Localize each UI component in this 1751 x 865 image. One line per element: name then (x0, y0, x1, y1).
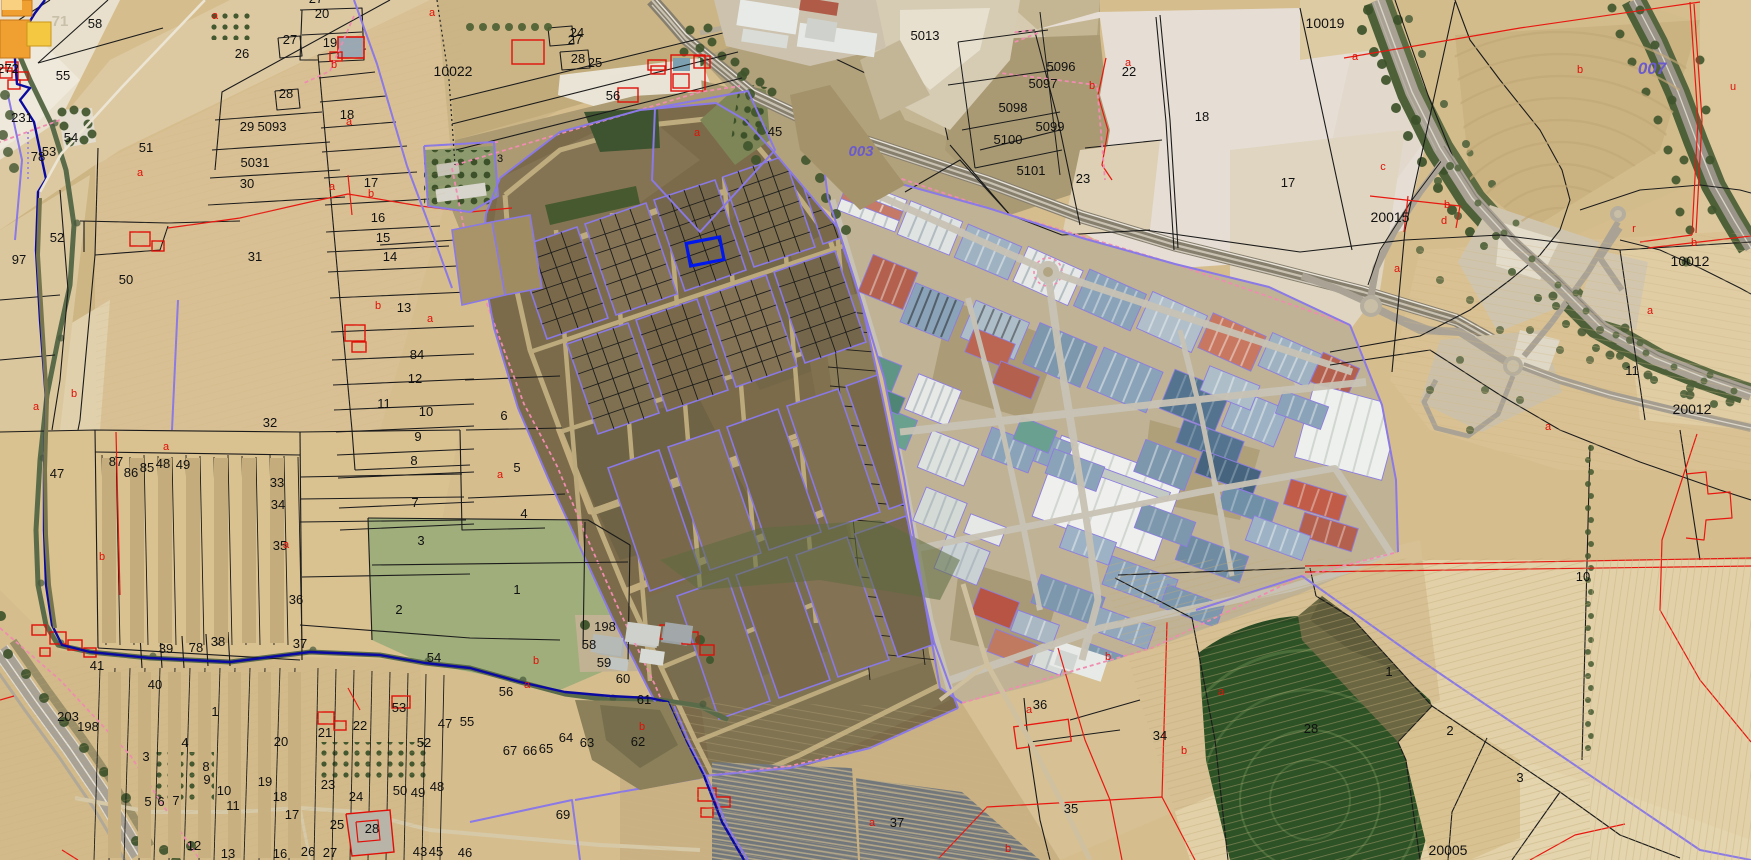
svg-text:10: 10 (217, 783, 231, 798)
svg-text:r: r (1632, 223, 1636, 235)
svg-text:48: 48 (430, 779, 444, 794)
svg-text:9: 9 (414, 429, 421, 444)
svg-text:45: 45 (768, 124, 782, 139)
svg-text:8: 8 (410, 453, 417, 468)
svg-text:29: 29 (240, 119, 254, 134)
svg-text:007: 007 (1638, 59, 1668, 78)
svg-text:231: 231 (11, 110, 33, 125)
svg-text:272: 272 (0, 61, 19, 76)
svg-text:5097: 5097 (1029, 76, 1058, 91)
svg-text:203: 203 (57, 709, 79, 724)
svg-text:5099: 5099 (1036, 119, 1065, 134)
svg-text:71: 71 (52, 13, 69, 30)
svg-text:45: 45 (429, 844, 443, 859)
svg-text:59: 59 (597, 655, 611, 670)
svg-text:18: 18 (273, 789, 287, 804)
svg-text:b: b (1089, 80, 1095, 92)
svg-text:56: 56 (606, 88, 620, 103)
svg-text:62: 62 (631, 734, 645, 749)
svg-text:48: 48 (156, 456, 170, 471)
svg-text:58: 58 (582, 637, 596, 652)
svg-text:16: 16 (273, 846, 287, 860)
svg-text:66: 66 (523, 743, 537, 758)
svg-text:5: 5 (513, 460, 520, 475)
svg-text:11: 11 (226, 798, 240, 813)
svg-text:a: a (283, 539, 290, 551)
svg-text:17: 17 (1281, 175, 1295, 190)
svg-text:b: b (331, 59, 337, 71)
svg-text:43: 43 (413, 844, 427, 859)
svg-text:5093: 5093 (258, 119, 287, 134)
svg-text:18: 18 (1195, 109, 1209, 124)
svg-text:11: 11 (1625, 363, 1639, 378)
svg-text:65: 65 (539, 741, 553, 756)
svg-text:34: 34 (1153, 728, 1167, 743)
svg-text:28: 28 (279, 86, 293, 101)
svg-text:20: 20 (315, 6, 329, 21)
svg-text:22: 22 (353, 718, 367, 733)
svg-text:27: 27 (323, 845, 337, 860)
svg-text:2: 2 (1446, 723, 1453, 738)
svg-text:5: 5 (144, 794, 151, 809)
svg-text:47: 47 (438, 716, 452, 731)
svg-text:a: a (1545, 421, 1552, 433)
svg-text:39: 39 (159, 641, 173, 656)
svg-text:36: 36 (1033, 697, 1047, 712)
svg-text:60: 60 (616, 671, 630, 686)
svg-text:20012: 20012 (1673, 401, 1712, 417)
svg-text:54: 54 (427, 650, 441, 665)
svg-text:64: 64 (559, 730, 573, 745)
svg-text:d: d (1441, 215, 1447, 227)
svg-text:33: 33 (270, 475, 284, 490)
svg-text:23: 23 (321, 777, 335, 792)
svg-text:a: a (33, 401, 40, 413)
svg-text:1: 1 (211, 704, 218, 719)
svg-text:a: a (163, 441, 170, 453)
svg-text:198: 198 (77, 719, 99, 734)
svg-text:5096: 5096 (1047, 59, 1076, 74)
svg-text:5101: 5101 (1017, 163, 1046, 178)
svg-text:19: 19 (323, 35, 337, 50)
svg-text:54: 54 (64, 130, 78, 145)
svg-text:26: 26 (301, 844, 315, 859)
svg-text:b: b (639, 721, 645, 733)
svg-text:30: 30 (240, 176, 254, 191)
svg-text:6: 6 (157, 794, 164, 809)
svg-text:b: b (1105, 651, 1111, 663)
svg-text:78: 78 (31, 149, 45, 164)
svg-text:26: 26 (235, 46, 249, 61)
svg-text:u: u (1730, 81, 1736, 93)
svg-text:12: 12 (187, 838, 201, 853)
svg-text:5013: 5013 (911, 28, 940, 43)
svg-text:003: 003 (848, 143, 874, 160)
svg-text:a: a (427, 313, 434, 325)
svg-text:52: 52 (50, 230, 64, 245)
svg-text:13: 13 (221, 846, 235, 860)
svg-text:a: a (429, 7, 436, 19)
svg-text:25: 25 (330, 817, 344, 832)
svg-text:84: 84 (410, 347, 424, 362)
svg-text:a: a (1394, 263, 1401, 275)
svg-text:12: 12 (408, 371, 422, 386)
svg-text:10: 10 (1576, 569, 1590, 584)
svg-text:97: 97 (12, 252, 26, 267)
svg-text:a: a (212, 10, 219, 22)
svg-text:78: 78 (189, 640, 203, 655)
svg-text:32: 32 (263, 415, 277, 430)
svg-text:55: 55 (56, 68, 70, 83)
svg-text:a: a (524, 679, 531, 691)
svg-text:50: 50 (393, 783, 407, 798)
svg-text:41: 41 (90, 658, 104, 673)
svg-text:3: 3 (1516, 770, 1523, 785)
svg-text:63: 63 (580, 735, 594, 750)
svg-text:19: 19 (258, 774, 272, 789)
svg-text:35: 35 (1064, 801, 1078, 816)
svg-text:23: 23 (1076, 171, 1090, 186)
svg-text:28: 28 (365, 821, 379, 836)
svg-text:17: 17 (285, 807, 299, 822)
svg-text:15: 15 (376, 230, 390, 245)
svg-text:56: 56 (499, 684, 513, 699)
svg-text:49: 49 (411, 785, 425, 800)
svg-text:21: 21 (318, 725, 332, 740)
svg-text:20005: 20005 (1429, 842, 1468, 858)
svg-text:a: a (869, 817, 876, 829)
svg-text:10019: 10019 (1306, 15, 1345, 31)
svg-text:34: 34 (271, 497, 285, 512)
svg-text:3: 3 (417, 533, 424, 548)
svg-text:b: b (368, 188, 374, 200)
svg-text:a: a (694, 127, 701, 139)
svg-text:198: 198 (594, 619, 616, 634)
svg-text:a: a (1125, 57, 1132, 69)
svg-text:86: 86 (124, 465, 138, 480)
svg-text:3: 3 (497, 153, 503, 165)
svg-text:61: 61 (637, 692, 651, 707)
svg-text:10012: 10012 (1671, 253, 1710, 269)
svg-text:28: 28 (1304, 721, 1318, 736)
svg-text:9: 9 (203, 772, 210, 787)
svg-text:24: 24 (349, 789, 363, 804)
svg-text:a: a (1218, 686, 1225, 698)
svg-text:49: 49 (176, 457, 190, 472)
svg-text:40: 40 (148, 677, 162, 692)
svg-text:25: 25 (588, 55, 602, 70)
svg-text:a: a (1647, 305, 1654, 317)
svg-text:b: b (375, 300, 381, 312)
svg-text:a: a (346, 116, 353, 128)
svg-text:13: 13 (397, 300, 411, 315)
svg-text:b: b (1181, 745, 1187, 757)
svg-text:7: 7 (172, 793, 179, 808)
svg-text:27: 27 (309, 0, 323, 6)
svg-text:a: a (1026, 704, 1033, 716)
svg-text:50: 50 (119, 272, 133, 287)
svg-text:1: 1 (513, 582, 520, 597)
svg-text:27: 27 (283, 32, 297, 47)
svg-text:5031: 5031 (241, 155, 270, 170)
svg-text:20015: 20015 (1371, 209, 1410, 225)
svg-text:47: 47 (50, 466, 64, 481)
svg-text:16: 16 (371, 210, 385, 225)
svg-text:53: 53 (392, 700, 406, 715)
svg-text:10: 10 (419, 404, 433, 419)
svg-text:b: b (99, 551, 105, 563)
svg-text:a: a (1352, 51, 1359, 63)
svg-text:31: 31 (248, 249, 262, 264)
svg-text:37: 37 (293, 636, 307, 651)
svg-text:85: 85 (140, 460, 154, 475)
svg-text:28: 28 (571, 51, 585, 66)
svg-text:14: 14 (383, 249, 397, 264)
svg-text:b: b (1691, 237, 1697, 249)
svg-text:27: 27 (568, 32, 582, 47)
svg-text:46: 46 (458, 845, 472, 860)
svg-text:c: c (1380, 161, 1386, 173)
svg-text:b: b (1444, 199, 1450, 211)
svg-text:87: 87 (109, 454, 123, 469)
svg-text:5098: 5098 (999, 100, 1028, 115)
svg-text:a: a (137, 167, 144, 179)
svg-text:37: 37 (890, 815, 904, 830)
svg-text:2: 2 (395, 602, 402, 617)
svg-text:b: b (533, 655, 539, 667)
svg-text:20: 20 (274, 734, 288, 749)
svg-text:52: 52 (417, 735, 431, 750)
svg-text:a: a (329, 181, 336, 193)
svg-text:a: a (497, 469, 504, 481)
svg-text:67: 67 (503, 743, 517, 758)
svg-text:1: 1 (1385, 664, 1392, 679)
svg-text:5100: 5100 (994, 132, 1023, 147)
svg-text:4: 4 (520, 506, 527, 521)
svg-text:10022: 10022 (434, 63, 473, 79)
svg-text:4: 4 (181, 735, 188, 750)
svg-text:69: 69 (556, 807, 570, 822)
svg-text:b: b (71, 388, 77, 400)
svg-text:55: 55 (460, 714, 474, 729)
svg-text:b: b (1577, 64, 1583, 76)
svg-text:3: 3 (142, 749, 149, 764)
svg-text:51: 51 (139, 140, 153, 155)
svg-text:38: 38 (211, 634, 225, 649)
svg-text:11: 11 (377, 396, 391, 411)
svg-text:b: b (1005, 843, 1011, 855)
svg-text:6: 6 (500, 408, 507, 423)
svg-text:7: 7 (411, 495, 418, 510)
svg-text:58: 58 (88, 16, 102, 31)
svg-text:36: 36 (289, 592, 303, 607)
